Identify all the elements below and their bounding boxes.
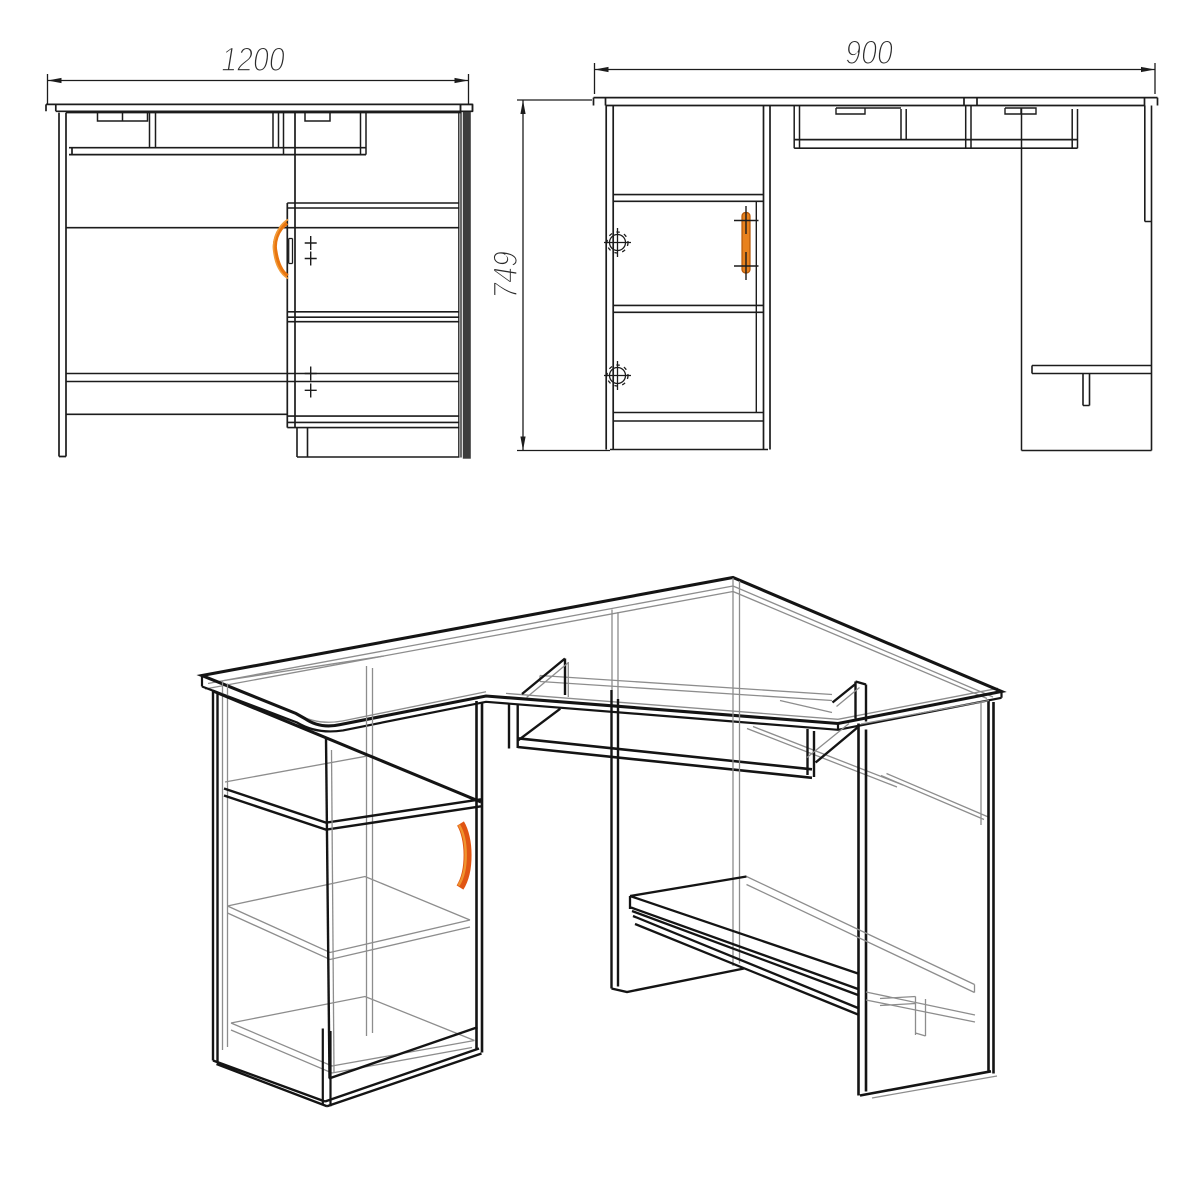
svg-text:1200: 1200 bbox=[221, 41, 285, 79]
svg-text:900: 900 bbox=[845, 34, 893, 72]
svg-text:749: 749 bbox=[487, 251, 525, 299]
